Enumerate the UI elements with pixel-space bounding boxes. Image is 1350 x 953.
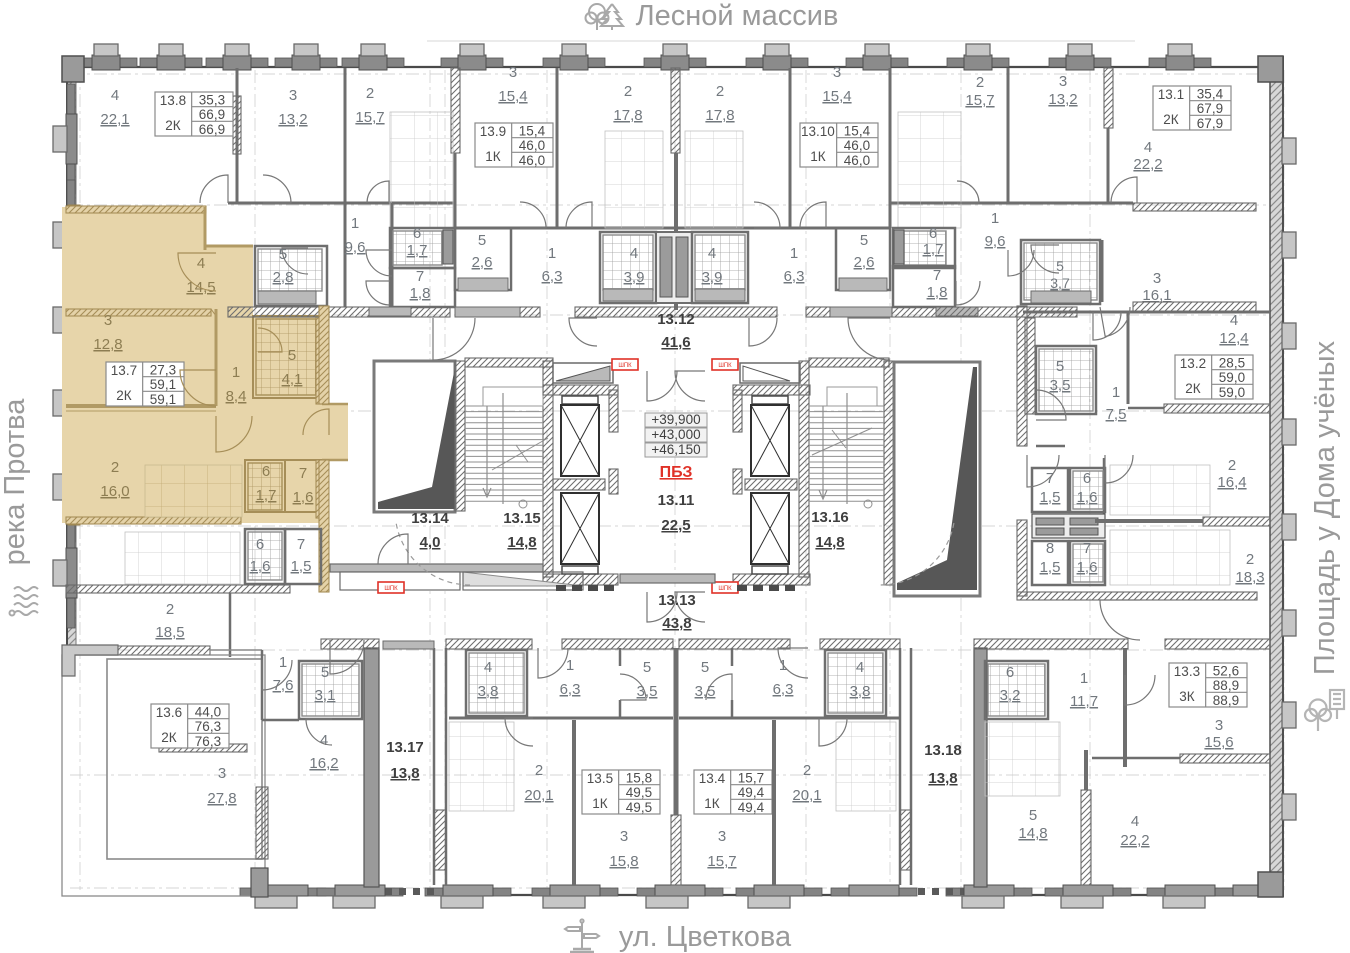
svg-text:13.8: 13.8 bbox=[160, 93, 186, 108]
svg-text:3,5: 3,5 bbox=[1050, 377, 1071, 394]
svg-text:3К: 3К bbox=[1179, 689, 1195, 704]
svg-text:5: 5 bbox=[643, 659, 651, 676]
svg-text:+46,150: +46,150 bbox=[651, 442, 700, 457]
svg-text:18,3: 18,3 bbox=[1235, 569, 1264, 586]
svg-text:46,0: 46,0 bbox=[519, 138, 545, 153]
svg-text:13.11: 13.11 bbox=[658, 492, 695, 509]
svg-text:2К: 2К bbox=[1163, 112, 1179, 127]
svg-text:1,6: 1,6 bbox=[1077, 489, 1098, 506]
svg-text:15,7: 15,7 bbox=[707, 853, 736, 870]
svg-text:7,6: 7,6 bbox=[273, 677, 294, 694]
svg-text:13.10: 13.10 bbox=[801, 124, 835, 139]
svg-text:6,3: 6,3 bbox=[773, 681, 794, 698]
svg-text:16,2: 16,2 bbox=[309, 755, 338, 772]
svg-text:6,3: 6,3 bbox=[560, 681, 581, 698]
svg-text:2: 2 bbox=[166, 601, 174, 618]
svg-text:4: 4 bbox=[856, 659, 864, 676]
svg-text:4: 4 bbox=[197, 255, 205, 272]
svg-text:49,5: 49,5 bbox=[626, 785, 652, 800]
svg-text:5: 5 bbox=[288, 347, 296, 364]
svg-text:3: 3 bbox=[104, 312, 112, 329]
svg-text:17,8: 17,8 bbox=[613, 107, 642, 124]
svg-text:2: 2 bbox=[535, 762, 543, 779]
svg-text:7: 7 bbox=[933, 267, 941, 284]
svg-text:1: 1 bbox=[1080, 670, 1088, 687]
svg-text:20,1: 20,1 bbox=[524, 787, 553, 804]
svg-text:3: 3 bbox=[1153, 270, 1161, 287]
svg-text:7: 7 bbox=[299, 465, 307, 482]
svg-text:13.13: 13.13 bbox=[658, 592, 696, 609]
svg-text:3,5: 3,5 bbox=[637, 683, 658, 700]
svg-text:22,1: 22,1 bbox=[100, 111, 129, 128]
svg-text:5: 5 bbox=[321, 664, 329, 681]
svg-text:6: 6 bbox=[1083, 470, 1091, 487]
svg-text:4: 4 bbox=[630, 245, 638, 262]
svg-text:13.16: 13.16 bbox=[811, 509, 849, 526]
svg-text:66,9: 66,9 bbox=[199, 107, 225, 122]
svg-text:88,9: 88,9 bbox=[1213, 693, 1239, 708]
svg-text:20,1: 20,1 bbox=[792, 787, 821, 804]
svg-text:1К: 1К bbox=[485, 149, 501, 164]
svg-text:2К: 2К bbox=[161, 730, 177, 745]
svg-text:41,6: 41,6 bbox=[661, 334, 690, 351]
svg-text:16,0: 16,0 bbox=[100, 483, 129, 500]
svg-text:14,8: 14,8 bbox=[1018, 825, 1047, 842]
svg-text:5: 5 bbox=[1029, 807, 1037, 824]
svg-text:1,7: 1,7 bbox=[923, 241, 944, 258]
svg-text:35,3: 35,3 bbox=[199, 93, 225, 108]
svg-text:6: 6 bbox=[929, 225, 937, 242]
svg-text:59,0: 59,0 bbox=[1219, 370, 1245, 385]
svg-text:4: 4 bbox=[111, 87, 119, 104]
svg-text:15,4: 15,4 bbox=[822, 88, 851, 105]
svg-text:ШПК: ШПК bbox=[718, 363, 732, 369]
svg-text:1: 1 bbox=[991, 210, 999, 227]
svg-text:6: 6 bbox=[413, 225, 421, 242]
svg-text:67,9: 67,9 bbox=[1197, 101, 1223, 116]
svg-text:5: 5 bbox=[1056, 358, 1064, 375]
svg-text:18,5: 18,5 bbox=[155, 624, 184, 641]
svg-text:27,3: 27,3 bbox=[150, 363, 176, 378]
svg-text:13.14: 13.14 bbox=[411, 510, 449, 527]
svg-text:7,5: 7,5 bbox=[1106, 406, 1127, 423]
svg-text:4: 4 bbox=[1144, 139, 1152, 156]
svg-text:1,6: 1,6 bbox=[250, 558, 271, 575]
svg-text:1,7: 1,7 bbox=[407, 242, 428, 259]
svg-text:15,8: 15,8 bbox=[609, 853, 638, 870]
svg-text:13.6: 13.6 bbox=[156, 705, 182, 720]
svg-text:3,7: 3,7 bbox=[1050, 275, 1070, 291]
svg-text:5: 5 bbox=[279, 246, 287, 263]
svg-text:59,0: 59,0 bbox=[1219, 385, 1245, 400]
svg-text:2,6: 2,6 bbox=[854, 254, 875, 271]
svg-text:13,2: 13,2 bbox=[1048, 91, 1077, 108]
svg-text:ШПК: ШПК bbox=[384, 586, 398, 592]
svg-text:ШПК: ШПК bbox=[718, 586, 732, 592]
svg-text:59,1: 59,1 bbox=[150, 392, 176, 407]
svg-text:1: 1 bbox=[232, 364, 240, 381]
svg-text:2: 2 bbox=[624, 83, 632, 100]
svg-text:9,6: 9,6 bbox=[985, 233, 1006, 250]
svg-text:5: 5 bbox=[701, 659, 709, 676]
svg-text:15,4: 15,4 bbox=[519, 124, 546, 139]
svg-text:1: 1 bbox=[279, 654, 287, 671]
svg-text:13,8: 13,8 bbox=[928, 770, 957, 787]
svg-text:1: 1 bbox=[1112, 384, 1120, 401]
svg-text:2К: 2К bbox=[165, 118, 181, 133]
svg-text:3: 3 bbox=[1059, 73, 1067, 90]
svg-text:76,3: 76,3 bbox=[195, 734, 221, 749]
svg-text:13.7: 13.7 bbox=[111, 363, 137, 378]
svg-text:7: 7 bbox=[297, 536, 305, 553]
svg-text:7: 7 bbox=[1046, 470, 1054, 487]
svg-text:6: 6 bbox=[262, 463, 270, 480]
svg-text:13,2: 13,2 bbox=[278, 111, 307, 128]
svg-text:16,4: 16,4 bbox=[1217, 474, 1246, 491]
svg-text:2,6: 2,6 bbox=[472, 254, 493, 271]
svg-text:9,6: 9,6 bbox=[345, 239, 366, 256]
svg-text:2: 2 bbox=[111, 459, 119, 476]
svg-text:3: 3 bbox=[289, 87, 297, 104]
svg-text:13.12: 13.12 bbox=[657, 311, 695, 328]
svg-text:3: 3 bbox=[218, 765, 226, 782]
svg-text:4: 4 bbox=[320, 732, 328, 749]
svg-text:1,5: 1,5 bbox=[1040, 559, 1061, 576]
svg-text:4: 4 bbox=[484, 659, 492, 676]
svg-text:22,2: 22,2 bbox=[1120, 832, 1149, 849]
svg-text:13.5: 13.5 bbox=[587, 771, 613, 786]
svg-text:14,8: 14,8 bbox=[507, 534, 536, 551]
svg-text:67,9: 67,9 bbox=[1197, 116, 1223, 131]
svg-text:17,8: 17,8 bbox=[705, 107, 734, 124]
svg-text:8,4: 8,4 bbox=[226, 388, 247, 405]
svg-text:3: 3 bbox=[833, 64, 841, 81]
svg-text:3,8: 3,8 bbox=[850, 683, 871, 700]
svg-text:1,5: 1,5 bbox=[291, 558, 312, 575]
svg-text:1,6: 1,6 bbox=[1077, 559, 1098, 576]
svg-text:1: 1 bbox=[566, 657, 574, 674]
svg-text:4: 4 bbox=[708, 245, 716, 262]
svg-text:12,8: 12,8 bbox=[93, 336, 122, 353]
svg-text:2: 2 bbox=[366, 85, 374, 102]
svg-text:1,6: 1,6 bbox=[293, 489, 314, 506]
svg-text:7: 7 bbox=[416, 268, 424, 285]
svg-text:15,6: 15,6 bbox=[1204, 734, 1233, 751]
svg-text:13.18: 13.18 bbox=[924, 742, 962, 759]
svg-text:7: 7 bbox=[1083, 540, 1091, 557]
svg-text:15,7: 15,7 bbox=[738, 771, 764, 786]
svg-text:13,8: 13,8 bbox=[390, 765, 419, 782]
svg-text:2: 2 bbox=[803, 762, 811, 779]
svg-text:1К: 1К bbox=[810, 149, 826, 164]
svg-text:3: 3 bbox=[718, 828, 726, 845]
svg-text:59,1: 59,1 bbox=[150, 377, 176, 392]
svg-text:15,7: 15,7 bbox=[965, 92, 994, 109]
svg-text:11,7: 11,7 bbox=[1070, 693, 1098, 710]
svg-text:2К: 2К bbox=[116, 388, 132, 403]
svg-text:13.17: 13.17 bbox=[386, 739, 424, 756]
svg-text:49,5: 49,5 bbox=[626, 800, 652, 815]
svg-text:река Протва: река Протва bbox=[0, 398, 31, 566]
svg-text:6: 6 bbox=[256, 536, 264, 553]
svg-text:+43,000: +43,000 bbox=[651, 427, 700, 442]
svg-text:3: 3 bbox=[620, 828, 628, 845]
svg-text:8: 8 bbox=[1046, 540, 1054, 557]
svg-text:5: 5 bbox=[860, 232, 868, 249]
svg-text:3: 3 bbox=[509, 64, 517, 81]
svg-text:13.2: 13.2 bbox=[1180, 356, 1206, 371]
svg-text:28,5: 28,5 bbox=[1219, 356, 1245, 371]
svg-text:13.3: 13.3 bbox=[1174, 664, 1200, 679]
svg-text:3,5: 3,5 bbox=[695, 683, 716, 700]
svg-text:3,9: 3,9 bbox=[624, 269, 645, 286]
svg-text:ПБЗ: ПБЗ bbox=[660, 464, 693, 481]
svg-text:+39,900: +39,900 bbox=[651, 412, 700, 427]
svg-text:15,4: 15,4 bbox=[498, 88, 527, 105]
svg-text:2К: 2К bbox=[1185, 381, 1201, 396]
svg-text:5: 5 bbox=[478, 232, 486, 249]
svg-text:22,2: 22,2 bbox=[1133, 156, 1162, 173]
svg-text:27,8: 27,8 bbox=[207, 790, 236, 807]
svg-text:14,8: 14,8 bbox=[815, 534, 844, 551]
svg-text:35,4: 35,4 bbox=[1197, 87, 1224, 102]
svg-text:15,7: 15,7 bbox=[355, 109, 384, 126]
svg-text:6,3: 6,3 bbox=[542, 268, 563, 285]
svg-text:88,9: 88,9 bbox=[1213, 678, 1239, 693]
svg-text:46,0: 46,0 bbox=[519, 153, 545, 168]
svg-text:46,0: 46,0 bbox=[844, 153, 870, 168]
svg-text:2: 2 bbox=[1246, 551, 1254, 568]
svg-text:13.15: 13.15 bbox=[503, 510, 541, 527]
svg-text:4,1: 4,1 bbox=[282, 371, 303, 388]
svg-text:1,7: 1,7 bbox=[256, 487, 277, 504]
svg-text:49,4: 49,4 bbox=[738, 800, 765, 815]
svg-text:4,0: 4,0 bbox=[420, 534, 441, 551]
svg-text:1,5: 1,5 bbox=[1040, 489, 1061, 506]
svg-text:1,8: 1,8 bbox=[410, 285, 431, 302]
svg-text:ул. Цветкова: ул. Цветкова bbox=[619, 921, 792, 953]
svg-text:ШПК: ШПК bbox=[618, 363, 632, 369]
svg-text:1: 1 bbox=[351, 215, 359, 232]
svg-text:22,5: 22,5 bbox=[661, 517, 690, 534]
svg-text:6,3: 6,3 bbox=[784, 268, 805, 285]
svg-text:49,4: 49,4 bbox=[738, 785, 765, 800]
svg-text:3,1: 3,1 bbox=[315, 687, 336, 704]
svg-text:3,8: 3,8 bbox=[478, 683, 499, 700]
svg-text:2: 2 bbox=[716, 83, 724, 100]
svg-text:52,6: 52,6 bbox=[1213, 664, 1239, 679]
svg-text:1,8: 1,8 bbox=[927, 284, 948, 301]
svg-text:2,8: 2,8 bbox=[273, 269, 294, 286]
svg-text:13.9: 13.9 bbox=[480, 124, 506, 139]
svg-text:1К: 1К bbox=[592, 796, 608, 811]
svg-text:44,0: 44,0 bbox=[195, 705, 221, 720]
svg-text:43,8: 43,8 bbox=[662, 615, 691, 632]
svg-text:4: 4 bbox=[1230, 312, 1238, 329]
svg-text:13.1: 13.1 bbox=[1158, 87, 1184, 102]
svg-text:Лесной массив: Лесной массив bbox=[636, 0, 839, 32]
svg-text:Площадь у Дома учёных: Площадь у Дома учёных bbox=[1309, 340, 1341, 675]
svg-text:76,3: 76,3 bbox=[195, 719, 221, 734]
svg-text:5: 5 bbox=[1056, 258, 1064, 274]
svg-text:2: 2 bbox=[1228, 457, 1236, 474]
svg-text:66,9: 66,9 bbox=[199, 122, 225, 137]
svg-text:6: 6 bbox=[1006, 664, 1014, 681]
svg-text:12,4: 12,4 bbox=[1219, 330, 1248, 347]
svg-text:1: 1 bbox=[790, 245, 798, 262]
svg-text:3,9: 3,9 bbox=[702, 269, 723, 286]
svg-text:4: 4 bbox=[1131, 813, 1139, 830]
svg-text:1: 1 bbox=[548, 245, 556, 262]
svg-text:3,2: 3,2 bbox=[1000, 687, 1021, 704]
svg-text:3: 3 bbox=[1215, 717, 1223, 734]
svg-text:46,0: 46,0 bbox=[844, 138, 870, 153]
svg-text:15,8: 15,8 bbox=[626, 771, 652, 786]
svg-text:2: 2 bbox=[976, 74, 984, 91]
svg-text:1К: 1К bbox=[704, 796, 720, 811]
svg-text:15,4: 15,4 bbox=[844, 124, 871, 139]
svg-text:13.4: 13.4 bbox=[699, 771, 726, 786]
